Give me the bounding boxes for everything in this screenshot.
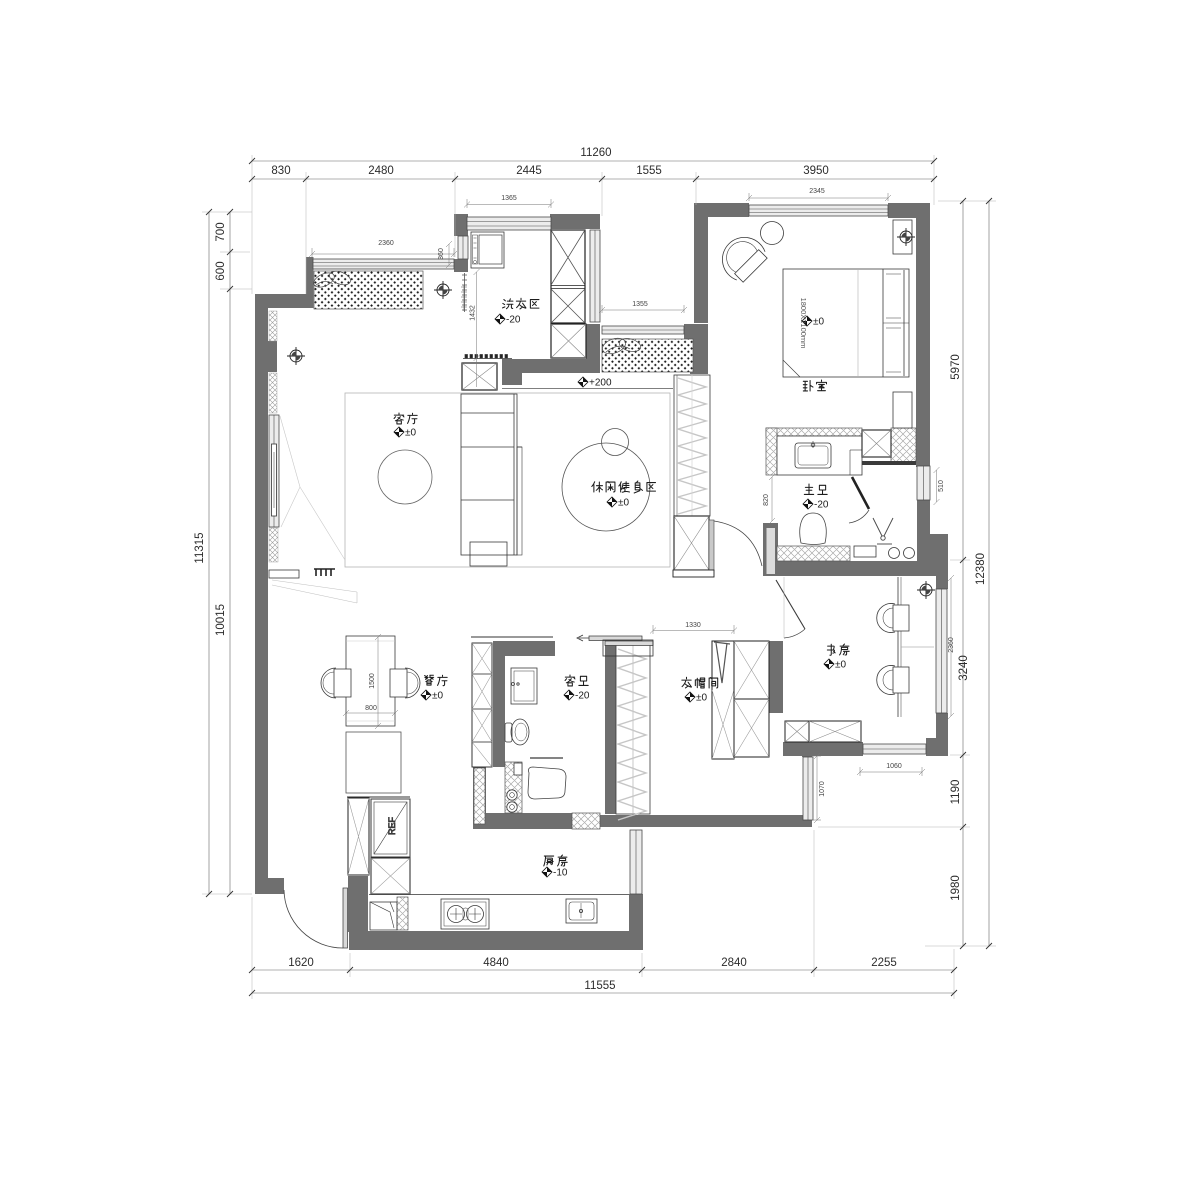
svg-text:800: 800 bbox=[365, 705, 377, 712]
svg-text:3240: 3240 bbox=[958, 655, 970, 681]
svg-text:360: 360 bbox=[438, 248, 445, 260]
svg-text:1500: 1500 bbox=[369, 673, 376, 689]
svg-text:REF: REF bbox=[387, 816, 397, 835]
svg-text:2480: 2480 bbox=[368, 165, 394, 177]
svg-text:1432: 1432 bbox=[470, 305, 477, 321]
svg-text:1365: 1365 bbox=[501, 195, 517, 202]
svg-text:-20: -20 bbox=[575, 691, 590, 702]
svg-text:830: 830 bbox=[271, 165, 290, 177]
svg-text:±0: ±0 bbox=[696, 693, 707, 704]
svg-text:1620: 1620 bbox=[288, 957, 314, 969]
svg-text:700: 700 bbox=[215, 222, 227, 241]
svg-text:820: 820 bbox=[763, 494, 770, 506]
svg-text:-20: -20 bbox=[814, 500, 829, 511]
svg-text:2360: 2360 bbox=[378, 240, 394, 247]
svg-text:5970: 5970 bbox=[950, 354, 962, 380]
svg-text:3950: 3950 bbox=[803, 165, 829, 177]
svg-text:±0: ±0 bbox=[432, 691, 443, 702]
svg-text:10015: 10015 bbox=[215, 604, 227, 636]
svg-text:-10: -10 bbox=[553, 868, 568, 879]
svg-text:-20: -20 bbox=[506, 315, 521, 326]
svg-text:±0: ±0 bbox=[618, 498, 629, 509]
svg-text:1060: 1060 bbox=[886, 763, 902, 770]
svg-text:2445: 2445 bbox=[516, 165, 542, 177]
svg-text:2345: 2345 bbox=[809, 188, 825, 195]
svg-text:2360: 2360 bbox=[948, 637, 955, 653]
svg-text:11555: 11555 bbox=[584, 980, 615, 992]
svg-text:2840: 2840 bbox=[721, 957, 747, 969]
svg-text:2255: 2255 bbox=[871, 957, 897, 969]
svg-text:1070: 1070 bbox=[819, 781, 826, 797]
svg-text:1330: 1330 bbox=[685, 622, 701, 629]
svg-text:11315: 11315 bbox=[194, 532, 206, 563]
svg-text:1980: 1980 bbox=[950, 875, 962, 901]
svg-text:11260: 11260 bbox=[580, 147, 611, 159]
svg-text:+200: +200 bbox=[589, 378, 612, 389]
svg-text:1800X2100mm: 1800X2100mm bbox=[799, 298, 808, 349]
svg-text:±0: ±0 bbox=[835, 660, 846, 671]
svg-text:1555: 1555 bbox=[636, 165, 662, 177]
svg-text:1190: 1190 bbox=[950, 780, 962, 805]
svg-text:1355: 1355 bbox=[632, 301, 648, 308]
svg-text:±0: ±0 bbox=[405, 428, 416, 439]
svg-text:600: 600 bbox=[215, 261, 227, 280]
svg-text:12380: 12380 bbox=[975, 553, 987, 585]
svg-text:±0: ±0 bbox=[813, 317, 824, 328]
svg-text:510: 510 bbox=[938, 480, 945, 492]
svg-text:4840: 4840 bbox=[483, 957, 509, 969]
